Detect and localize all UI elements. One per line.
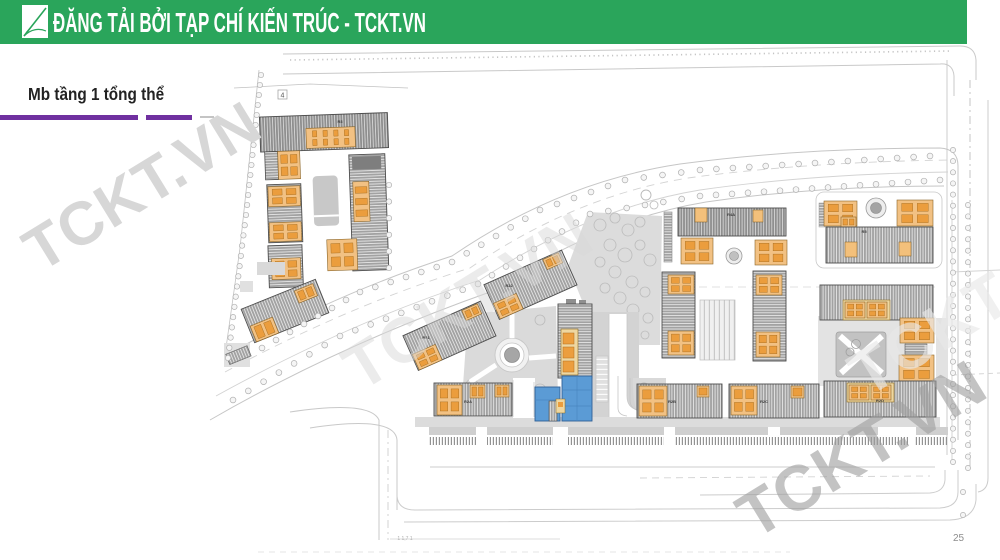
svg-text:R21: R21 (422, 335, 430, 340)
svg-text:R2B: R2B (668, 399, 676, 404)
svg-text:ĐĂNG TẢI BỞI TẠP CHÍ KIẾN TRÚC: ĐĂNG TẢI BỞI TẠP CHÍ KIẾN TRÚC - TCKT.VN (53, 6, 426, 38)
svg-text:R5: R5 (861, 229, 867, 234)
svg-text:4: 4 (281, 93, 285, 100)
svg-text:R2D: R2D (876, 398, 884, 403)
svg-text:R3: R3 (337, 119, 343, 124)
svg-text:R2C: R2C (760, 399, 768, 404)
svg-text:R4A: R4A (727, 212, 735, 217)
svg-text:1 1,7 1: 1 1,7 1 (397, 536, 413, 542)
svg-text:R22: R22 (505, 283, 513, 288)
svg-text:R2A: R2A (464, 399, 472, 404)
